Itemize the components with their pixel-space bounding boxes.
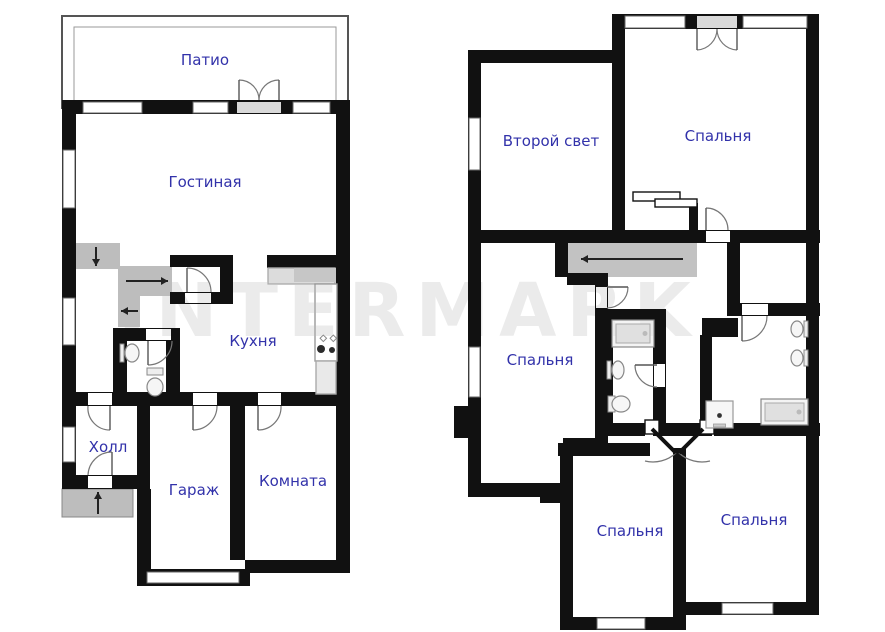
wall [600, 423, 645, 436]
door-opening [742, 304, 768, 315]
wall [468, 230, 820, 243]
label-kuhnya: Кухня [229, 332, 276, 350]
hall-door-arc [88, 406, 110, 430]
toilet-icon [147, 378, 163, 396]
door-opening [697, 16, 737, 28]
window [147, 572, 239, 583]
toilet-icon [612, 396, 630, 412]
door-opening [88, 476, 112, 488]
window [743, 16, 807, 28]
kitchen-sink-counter [294, 268, 335, 282]
door-opening [706, 231, 730, 242]
label-komnata: Комната [259, 472, 327, 490]
room-door-arc [258, 406, 281, 430]
wall [454, 406, 468, 438]
door-opening [146, 329, 171, 340]
window [469, 118, 480, 170]
wall [468, 50, 618, 63]
floorplan-svg: ПатиоГостинаяКухняХоллГаражКомнатаВторой… [0, 0, 885, 632]
wall [567, 273, 608, 285]
wall [170, 255, 233, 267]
window [625, 16, 685, 28]
patio-door-arc [239, 80, 259, 100]
bedroom-door-arc [706, 208, 728, 230]
window [63, 298, 75, 345]
wall [558, 443, 650, 456]
sink-icon [125, 344, 139, 362]
label-gostinaya: Гостиная [168, 173, 241, 191]
door-opening [654, 364, 665, 387]
bathtub-drain [797, 410, 802, 415]
window [63, 150, 75, 208]
wall [245, 560, 350, 573]
wall [468, 50, 481, 497]
shower-drain [717, 413, 722, 418]
wall [336, 100, 350, 573]
wall [727, 303, 820, 316]
wall [560, 443, 573, 630]
wall [267, 255, 350, 268]
sink-icon [612, 361, 624, 379]
patio-door-arc [259, 80, 279, 100]
label-spalnya: Спальня [721, 511, 788, 529]
door-opening [596, 287, 607, 308]
sink-icon [120, 344, 124, 362]
window [469, 347, 480, 397]
wall [659, 423, 701, 436]
fridge [316, 361, 336, 394]
floorplan-image: ПатиоГостинаяКухняХоллГаражКомнатаВторой… [0, 0, 885, 632]
door-opening [185, 293, 211, 303]
balcony-door-arc [697, 29, 717, 50]
window [597, 618, 645, 629]
label-spalnya: Спальня [597, 522, 664, 540]
bedroom-door-arc [607, 287, 628, 308]
label-garazh: Гараж [169, 481, 220, 499]
label-vtoroy-svet: Второй свет [503, 132, 600, 150]
window [83, 102, 142, 113]
stove-burner [329, 347, 335, 353]
toilet-icon [147, 368, 163, 375]
wall [673, 448, 686, 630]
door-opening [193, 393, 217, 405]
window [63, 427, 75, 462]
door-opening [258, 393, 281, 405]
sink-icon [804, 350, 808, 366]
window [193, 102, 228, 113]
window [293, 102, 330, 113]
door-opening [237, 102, 281, 113]
bathroom-door-arc [742, 316, 767, 341]
door-opening [88, 393, 112, 405]
balcony-door-arc [717, 29, 737, 50]
sink-icon [607, 361, 611, 379]
wall [555, 243, 568, 277]
sink-icon [791, 350, 803, 366]
closet-door-arc [187, 268, 211, 292]
wall [612, 25, 625, 243]
wall [230, 406, 245, 560]
window [722, 603, 773, 614]
label-spalnya: Спальня [507, 351, 574, 369]
wall [702, 318, 738, 337]
label-spalnya: Спальня [685, 127, 752, 145]
shower-icon [714, 424, 726, 427]
wardrobe [655, 199, 697, 207]
stove-burner [317, 345, 325, 353]
sink-icon [791, 321, 803, 337]
bathtub-drain [643, 331, 648, 336]
label-holl: Холл [89, 438, 128, 456]
sink-icon [804, 321, 808, 337]
wall [689, 203, 698, 241]
garage-door-arc [193, 406, 217, 430]
label-patio: Патио [181, 51, 229, 69]
